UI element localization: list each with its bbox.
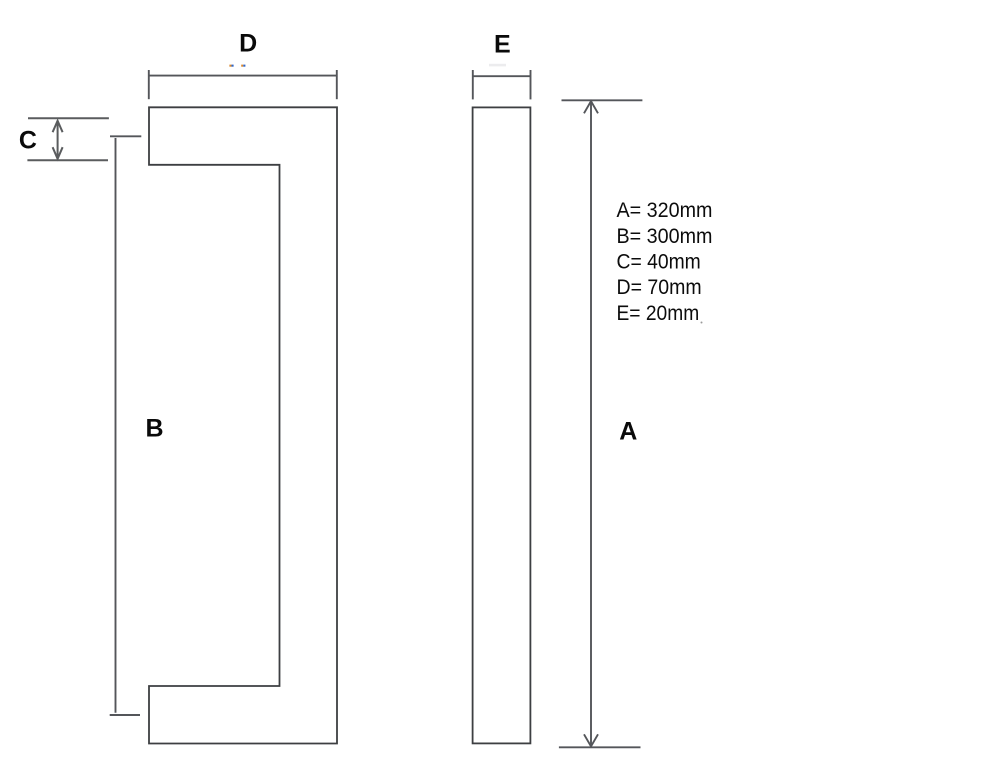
svg-text:E= 20mm: E= 20mm — [617, 302, 700, 325]
svg-text:C: C — [19, 127, 37, 155]
svg-text:A: A — [619, 418, 637, 446]
svg-text:D: D — [239, 29, 257, 57]
svg-text:B: B — [145, 415, 163, 443]
svg-text:B= 300mm: B= 300mm — [617, 224, 713, 248]
svg-text:E: E — [494, 30, 511, 58]
svg-text:A= 320mm: A= 320mm — [617, 199, 713, 223]
svg-text:C= 40mm: C= 40mm — [617, 251, 701, 274]
svg-text:D= 70mm: D= 70mm — [617, 276, 702, 299]
